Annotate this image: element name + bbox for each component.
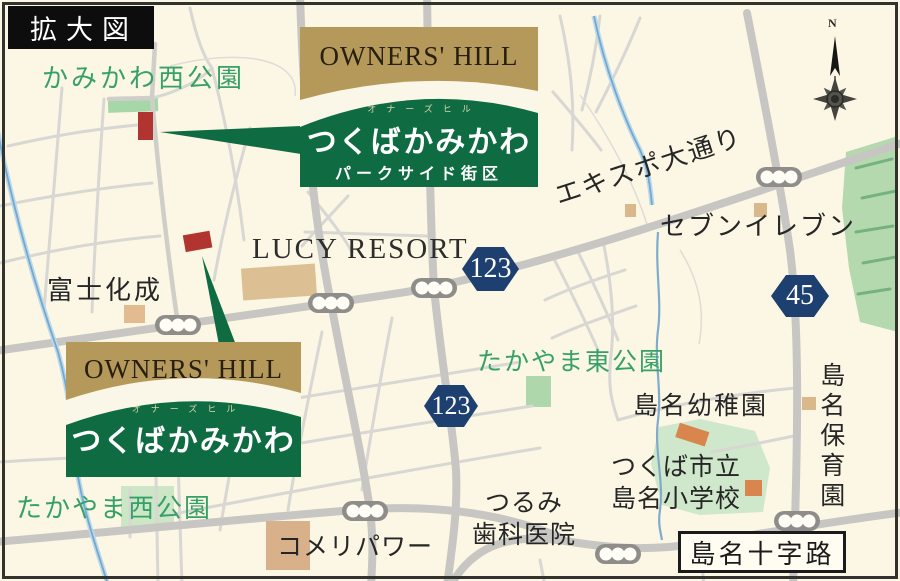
nursery-building [802, 397, 816, 410]
leader-pointer-south [202, 256, 236, 345]
compass-north-label: N [828, 16, 837, 31]
title-box: 拡大図 [8, 6, 154, 49]
label-komeri-power: コメリパワー [277, 534, 433, 563]
brand-furigana: オナーズヒル [66, 402, 301, 415]
badge-parkside: OWNERS' HILL オナーズヒル つくばかみかわ パークサイド街区 [300, 27, 538, 187]
traffic-light-icon [774, 511, 820, 531]
map-canvas: N 拡大図 OWNERS' HILL オナーズヒル つくばかみかわ パークサイド… [0, 0, 900, 581]
fuji-kasei-building [124, 305, 145, 323]
badge-main: OWNERS' HILL オナーズヒル つくばかみかわ [66, 342, 301, 477]
district-name: パークサイド街区 [300, 160, 538, 184]
traffic-light-icon [342, 501, 388, 521]
label-shimana-school: つくば市立 島名小学校 [611, 452, 741, 516]
label-kamikawa-west-park: かみかわ西公園 [42, 64, 245, 94]
label-dental-line2: 歯科医院 [462, 520, 586, 552]
label-lucy-resort: LUCY RESORT [252, 233, 469, 266]
label-seven-eleven: セブンイレブン [660, 212, 856, 242]
small-building [625, 204, 636, 217]
compass-icon [813, 36, 857, 121]
label-shimana-kindergarten: 島名幼稚園 [633, 393, 768, 422]
label-takayama-west-park: たかやま西公園 [16, 494, 212, 524]
label-takayama-east-park: たかやま東公園 [477, 349, 666, 378]
label-school-line1: つくば市立 [611, 452, 741, 484]
takayama-east-park-area [526, 376, 551, 407]
traffic-light-icon [411, 278, 457, 298]
traffic-light-icon [756, 167, 802, 187]
route-sign-123-north: 123 [462, 246, 519, 292]
traffic-light-icon [308, 293, 354, 313]
plot-north [138, 112, 153, 140]
label-dental-line1: つるみ [462, 488, 586, 520]
plot-south [183, 231, 213, 252]
brand-wordmark: OWNERS' HILL [66, 354, 301, 385]
route-sign-45: 45 [771, 274, 829, 318]
development-name: つくばかみかわ [66, 416, 301, 460]
label-tsurumi-dental: つるみ 歯科医院 [462, 488, 586, 552]
route-number: 45 [771, 274, 829, 318]
lucy-resort-building [241, 263, 317, 300]
development-name: つくばかみかわ [300, 117, 538, 161]
school-building-2 [745, 480, 762, 496]
brand-wordmark: OWNERS' HILL [300, 41, 538, 72]
route-number: 123 [424, 384, 478, 428]
crossroad-box: 島名十字路 [678, 531, 846, 573]
brand-furigana: オナーズヒル [300, 102, 538, 115]
traffic-light-icon [595, 544, 641, 564]
traffic-light-icon [155, 315, 201, 335]
label-school-line2: 島名小学校 [611, 484, 741, 516]
label-fuji-kasei: 富士化成 [47, 276, 163, 306]
route-sign-123-south: 123 [424, 384, 478, 428]
route-number: 123 [462, 246, 519, 292]
label-shimana-nursery: 島名保育園 [815, 362, 844, 517]
